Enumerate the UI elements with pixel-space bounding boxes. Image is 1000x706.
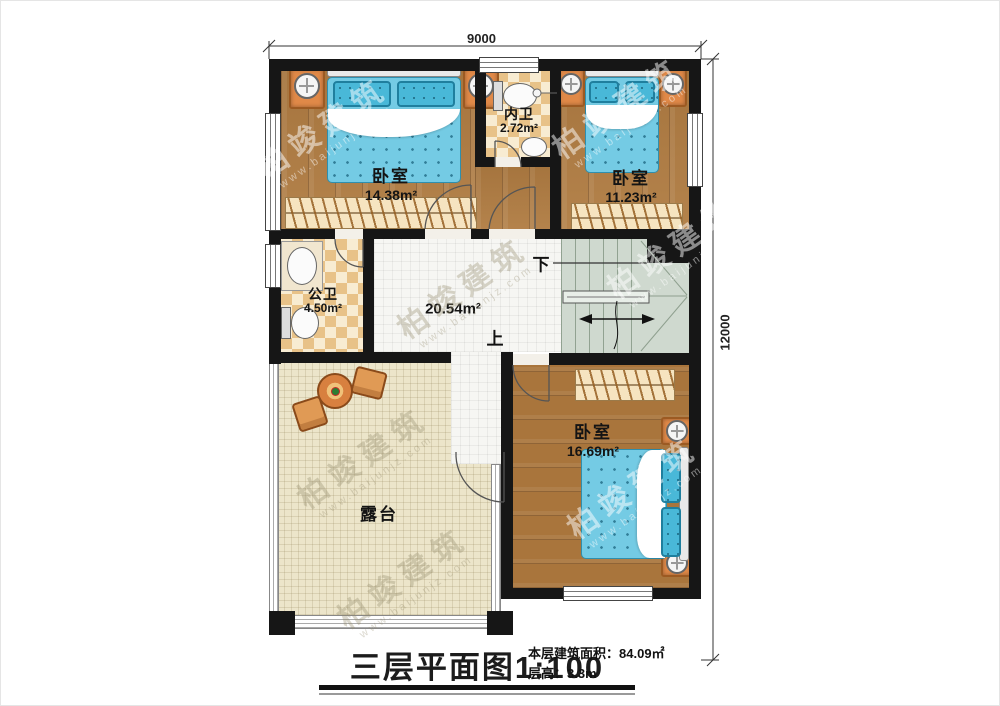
wall — [475, 157, 495, 167]
room-label-bedroom-2: 卧室 11.23m² — [605, 169, 656, 205]
wall — [647, 239, 689, 263]
lamp-icon — [662, 73, 684, 95]
lamp-icon — [294, 73, 320, 99]
wall — [475, 71, 486, 167]
threshold — [425, 229, 471, 239]
floor-plan-sheet: 卧室 14.38m² 内卫 2.72m² 卧室 11.23m² 公卫 4.50m… — [0, 0, 1000, 706]
terrace-railing — [293, 615, 489, 629]
wall — [363, 229, 425, 239]
wall — [501, 352, 513, 588]
table-plant-icon — [332, 388, 339, 395]
pillow — [625, 81, 655, 103]
title-underline-thin — [319, 693, 635, 695]
wall — [550, 71, 561, 239]
threshold — [489, 229, 535, 239]
pillow — [661, 453, 681, 503]
stairs-up-label: 上 — [487, 325, 504, 350]
dimension-right: 12000 — [718, 314, 733, 350]
wall — [549, 353, 701, 365]
pillow — [589, 81, 619, 103]
room-label-terrace: 露台 — [360, 505, 398, 525]
terrace-column — [487, 611, 513, 635]
sink-icon — [521, 137, 547, 157]
room-label-bath-public: 公卫 4.50m² — [304, 286, 342, 316]
wall — [535, 229, 550, 239]
terrace-railing — [269, 363, 279, 613]
threshold — [335, 229, 363, 239]
pillow — [333, 81, 391, 107]
pillow — [661, 507, 681, 557]
sink-icon — [287, 247, 317, 285]
window — [265, 244, 281, 288]
stairs-down-label: 下 — [533, 251, 550, 276]
window — [265, 113, 281, 231]
floor-area-info: 本层建筑面积：84.09㎡ — [528, 643, 665, 662]
title-underline — [319, 685, 635, 690]
window — [687, 113, 703, 187]
wall — [269, 352, 451, 363]
threshold — [495, 157, 521, 167]
room-label-bedroom-1: 卧室 14.38m² — [365, 167, 417, 203]
lamp-icon — [666, 420, 688, 442]
room-label-hall: 20.54m² — [425, 300, 481, 317]
window — [563, 586, 653, 601]
lamp-icon — [560, 73, 582, 95]
floor-vestibule — [475, 167, 550, 229]
wall — [550, 229, 689, 239]
terrace-column — [269, 611, 295, 635]
floor-height-info: 层高：3.3m — [528, 663, 597, 682]
room-label-bedroom-3: 卧室 16.69m² — [567, 423, 619, 459]
toilet-tank — [281, 307, 291, 339]
threshold — [513, 354, 549, 365]
pillow — [397, 81, 455, 107]
dimension-top: 9000 — [467, 31, 496, 46]
room-label-bath-inner: 内卫 2.72m² — [500, 106, 538, 136]
wardrobe-bedroom-3 — [575, 369, 675, 401]
window — [479, 57, 539, 73]
floor-hall-alcove — [451, 352, 501, 464]
terrace-railing — [491, 464, 501, 613]
wall — [363, 239, 374, 363]
wall — [471, 229, 489, 239]
